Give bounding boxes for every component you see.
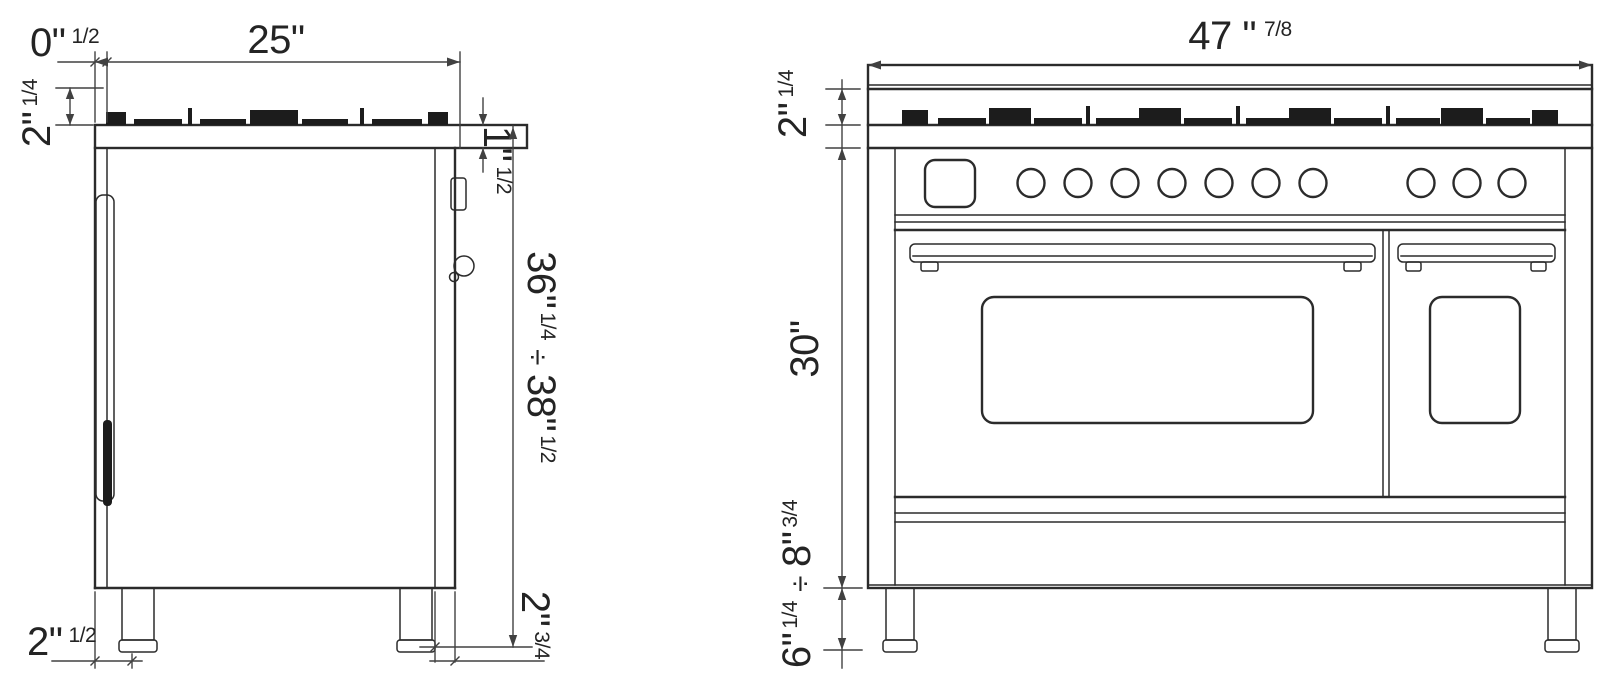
front-leg-left-foot [883, 640, 917, 652]
dim-front-width-label: 47 "7/8 [1188, 14, 1292, 58]
small-oven-window [1430, 297, 1520, 423]
main-oven-handle-foot [1344, 262, 1361, 271]
side-leg-front [122, 588, 154, 640]
side-rear-bracket [451, 178, 466, 210]
burner-knob [1018, 169, 1045, 197]
dim-side-front-offset-label: 0"1/2 [30, 21, 99, 65]
burner-knob [1300, 169, 1327, 197]
side-cooktop-band [95, 125, 527, 148]
small-oven-handle [1398, 244, 1555, 262]
diagram-canvas: 0"1/2 25" 2"1/4 1"1/2 36"1/4÷38"1/2 2"3/… [0, 0, 1600, 686]
front-kick-plate [895, 513, 1565, 522]
front-leg-right [1548, 588, 1576, 640]
dim-side-grate-height-label: 2"1/4 [15, 78, 59, 147]
oven-display [925, 160, 975, 207]
front-view [868, 65, 1592, 652]
oven-knob [1499, 169, 1526, 197]
front-leg-left [886, 588, 914, 640]
side-body [95, 148, 455, 588]
front-body [868, 65, 1592, 588]
side-legs [119, 588, 435, 652]
main-oven-handle-foot [921, 262, 938, 271]
side-view [95, 108, 527, 652]
burner-knob [1065, 169, 1092, 197]
dim-front-grate-height-label: 2"1/4 [771, 69, 815, 138]
dim-side-bottom-front-label: 2"1/2 [27, 620, 96, 664]
dim-side-height-range-label: 36"1/4÷38"1/2 [519, 251, 563, 463]
burner-knob [1206, 169, 1233, 197]
dim-front-body-height-label: 30" [783, 320, 827, 377]
front-oven-doors [895, 230, 1565, 497]
oven-knob [1454, 169, 1481, 197]
side-grates [106, 108, 448, 125]
small-oven-handle-foot [1406, 262, 1421, 271]
burner-knobs [1018, 169, 1526, 197]
range-dimension-diagram: 0"1/2 25" 2"1/4 1"1/2 36"1/4÷38"1/2 2"3/… [0, 0, 1600, 686]
oven-knob [1408, 169, 1435, 197]
front-grates [902, 106, 1558, 125]
burner-knob [1159, 169, 1186, 197]
dim-side-bottom-rear-label: 2"3/4 [513, 591, 557, 660]
front-control-panel [895, 160, 1565, 222]
dim-front-leg-range-label: 6"1/4÷8"3/4 [775, 499, 819, 668]
side-handle-grip [103, 420, 112, 506]
main-oven-window [982, 297, 1313, 423]
side-leg-rear [400, 588, 432, 640]
small-oven-handle-foot [1531, 262, 1546, 271]
side-leg-front-foot [119, 640, 157, 652]
side-leg-rear-foot [397, 640, 435, 652]
burner-knob [1253, 169, 1280, 197]
main-oven-handle [910, 244, 1375, 262]
dim-side-depth-label: 25" [247, 18, 304, 62]
front-legs [883, 588, 1579, 652]
front-leg-right-foot [1545, 640, 1579, 652]
burner-knob [1112, 169, 1139, 197]
